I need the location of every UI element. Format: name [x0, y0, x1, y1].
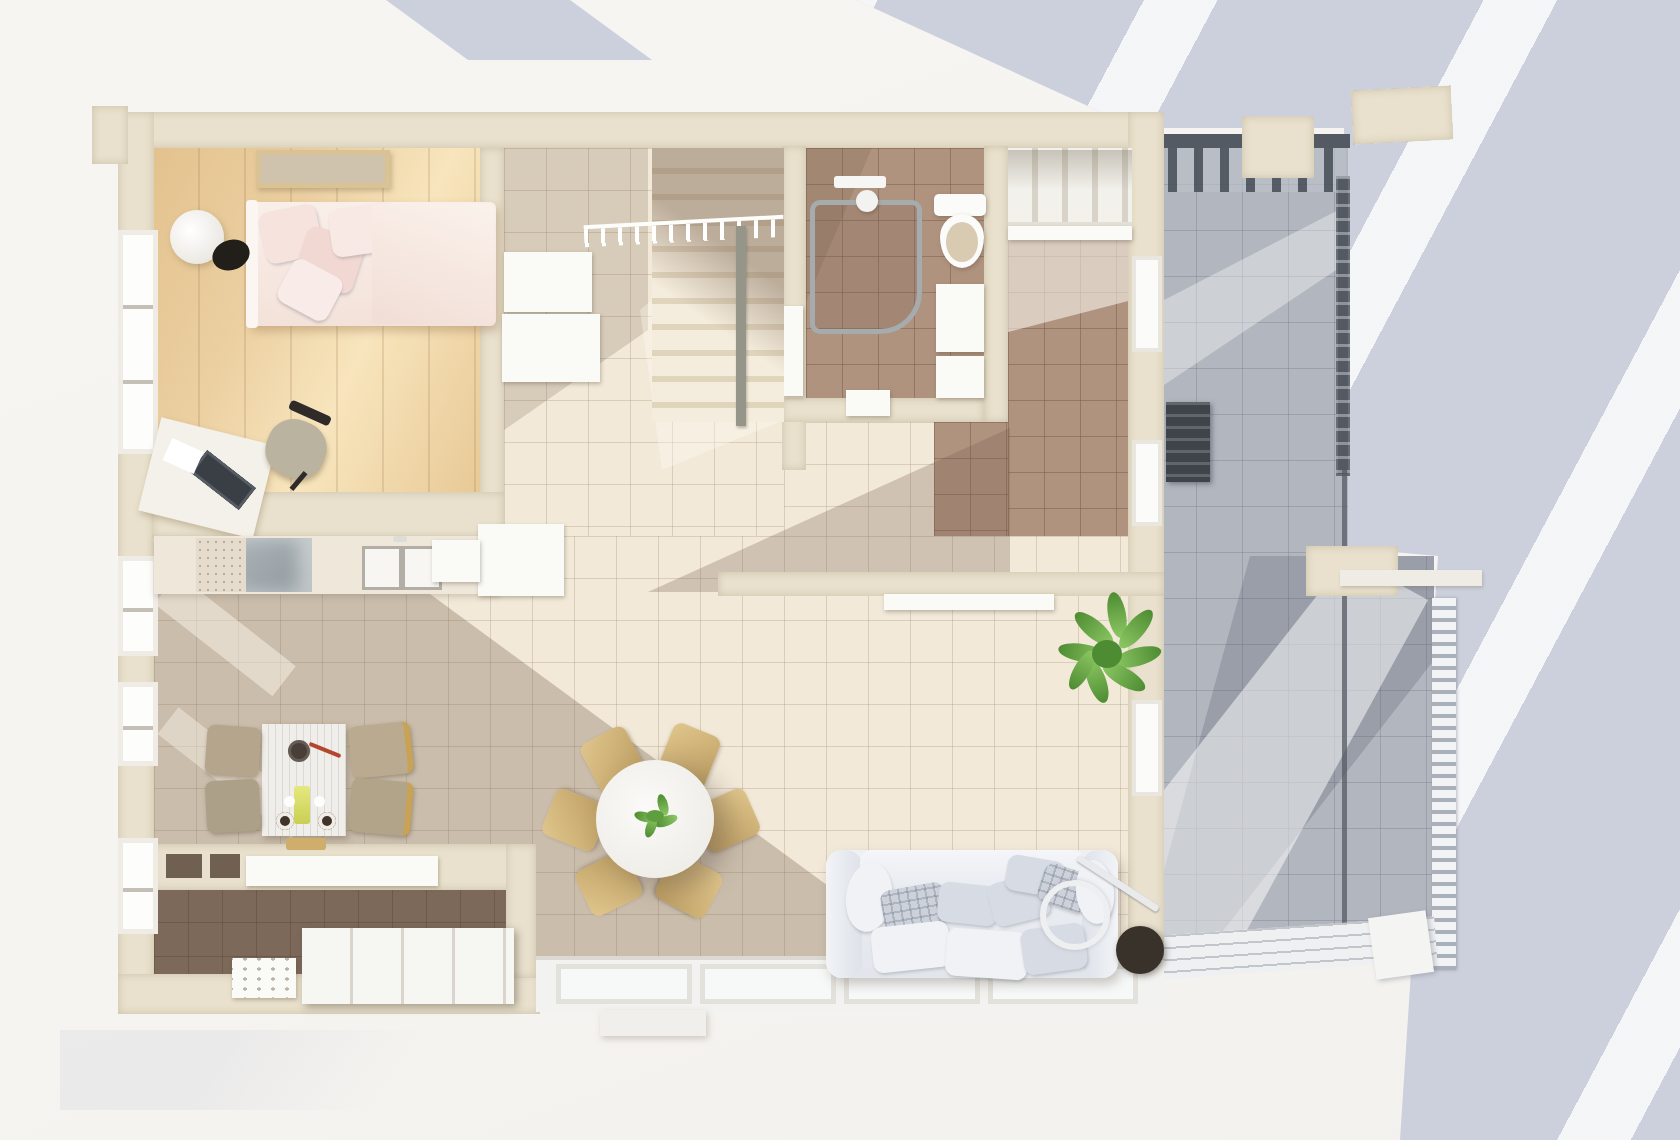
- potted-plant: [1056, 602, 1160, 706]
- balcony-corner-post: [1368, 910, 1434, 979]
- balcony-dark-rail-line: [1342, 470, 1347, 950]
- balcony-door-1: [1132, 256, 1162, 352]
- bed-duvet: [372, 204, 494, 324]
- centerpiece-leaf: [646, 810, 664, 822]
- nook-coaster-right: [318, 812, 336, 830]
- pass-through-slot-1: [166, 854, 202, 878]
- nook-tray: [286, 838, 326, 850]
- sofa-pillow-8: [870, 920, 952, 974]
- sliding-panel-1: [556, 964, 692, 1004]
- bathroom-vanity: [936, 284, 984, 352]
- staircase-shadow: [652, 148, 784, 422]
- sliding-door-living: [884, 594, 1054, 610]
- balcony-beam-white: [1340, 570, 1482, 586]
- window-left-3: [118, 682, 158, 766]
- floor-plan-render: [0, 0, 1680, 1140]
- platform-bed: [302, 928, 514, 1004]
- wall-top: [128, 112, 1164, 148]
- kitchen-island: [478, 524, 564, 596]
- ac-unit: [1166, 402, 1210, 482]
- window-left-1: [118, 230, 158, 454]
- wall-bathroom-closet: [984, 146, 1008, 422]
- sliding-panel-2: [700, 964, 836, 1004]
- kitchen-sink-left: [362, 546, 402, 590]
- nook-chair-right-2: [348, 777, 414, 836]
- nook-coaster-left: [276, 812, 294, 830]
- kitchen-cooktop: [246, 538, 312, 592]
- nook-vase: [288, 740, 310, 762]
- bathroom-washer: [936, 356, 984, 398]
- kitchen-island-step: [432, 540, 480, 582]
- plant-center: [1092, 640, 1122, 668]
- arc-lamp-base: [1116, 926, 1164, 974]
- white-slat-railing: [1432, 598, 1456, 970]
- exterior-ground-streak: [60, 1030, 620, 1110]
- shower-enclosure: [810, 200, 922, 334]
- hall-sideboard-1: [504, 252, 592, 312]
- pass-through-counter: [246, 856, 438, 886]
- toilet-tank: [934, 194, 986, 216]
- nook-chair-left-2: [205, 779, 262, 834]
- hall-sideboard-2: [502, 314, 600, 382]
- bed-headboard: [246, 200, 258, 328]
- background-blue-wedge-top-left: [380, 0, 660, 60]
- sofa-pillow-9: [944, 927, 1029, 981]
- balcony-dark-railing-icon: [1336, 176, 1350, 476]
- nook-chair-left-1: [204, 724, 261, 778]
- closet-door-panel: [1008, 226, 1132, 240]
- wall-living-hall: [718, 572, 1164, 596]
- wardrobe-shelf-shadow: [1008, 150, 1132, 190]
- kitchen-faucet: [393, 536, 407, 542]
- balcony-post-block: [1242, 116, 1314, 178]
- table-centerpiece-plant: [630, 794, 678, 842]
- stair-rail-post: [736, 226, 746, 426]
- nook-cup-left: [284, 796, 295, 807]
- kitchen-marble-worktop: [196, 538, 246, 592]
- balcony-window-3: [1132, 700, 1162, 796]
- nook-candle: [294, 786, 310, 824]
- toilet-seat: [946, 222, 978, 262]
- wall-stub-top-left: [92, 106, 128, 164]
- nook-cup-right: [314, 796, 325, 807]
- window-left-4: [118, 838, 158, 934]
- window-left-2: [118, 556, 158, 656]
- wall-art-frame: [256, 150, 390, 188]
- shower-head: [856, 190, 878, 212]
- pass-through-slot-2: [210, 854, 240, 878]
- shower-fixture: [834, 176, 886, 188]
- nightstand: [232, 958, 296, 998]
- balcony-beam-upper-right: [1351, 85, 1454, 144]
- wall-right: [1128, 112, 1164, 958]
- bathroom-fixture-bottom: [846, 390, 890, 416]
- door-bathroom: [783, 306, 803, 396]
- arc-lamp-ring: [1040, 880, 1110, 950]
- balcony-door-2: [1132, 440, 1162, 526]
- nook-chair-right-1: [347, 721, 414, 779]
